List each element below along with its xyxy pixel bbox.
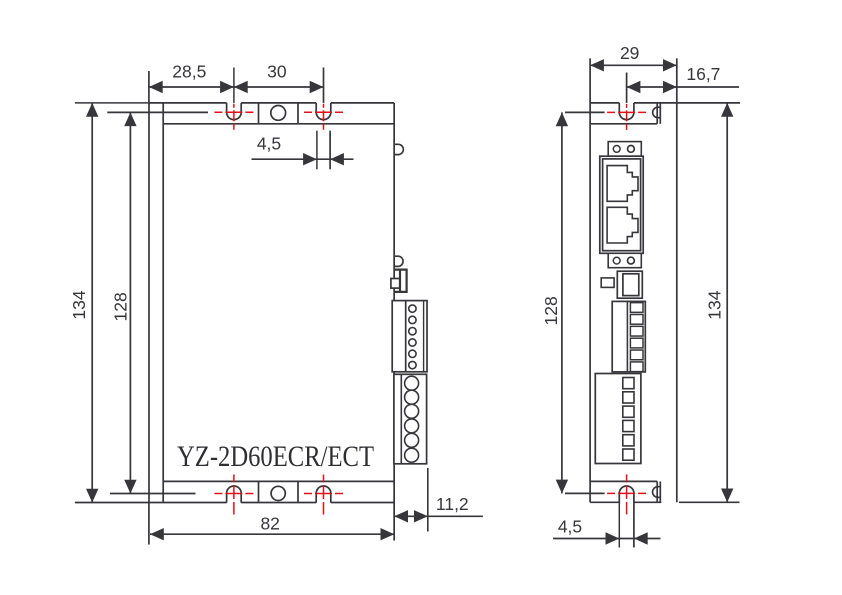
svg-text:128: 128: [541, 296, 561, 325]
svg-text:29: 29: [620, 43, 639, 63]
svg-text:134: 134: [69, 290, 89, 319]
svg-text:4,5: 4,5: [558, 516, 582, 536]
svg-text:30: 30: [267, 62, 287, 82]
svg-text:YZ-2D60ECR/ECT: YZ-2D60ECR/ECT: [177, 440, 374, 473]
svg-text:4,5: 4,5: [257, 134, 281, 154]
svg-text:82: 82: [260, 513, 279, 533]
svg-text:11,2: 11,2: [436, 494, 469, 514]
svg-text:28,5: 28,5: [172, 62, 206, 82]
svg-text:134: 134: [705, 290, 725, 319]
svg-text:16,7: 16,7: [686, 64, 720, 84]
svg-text:128: 128: [111, 292, 131, 321]
